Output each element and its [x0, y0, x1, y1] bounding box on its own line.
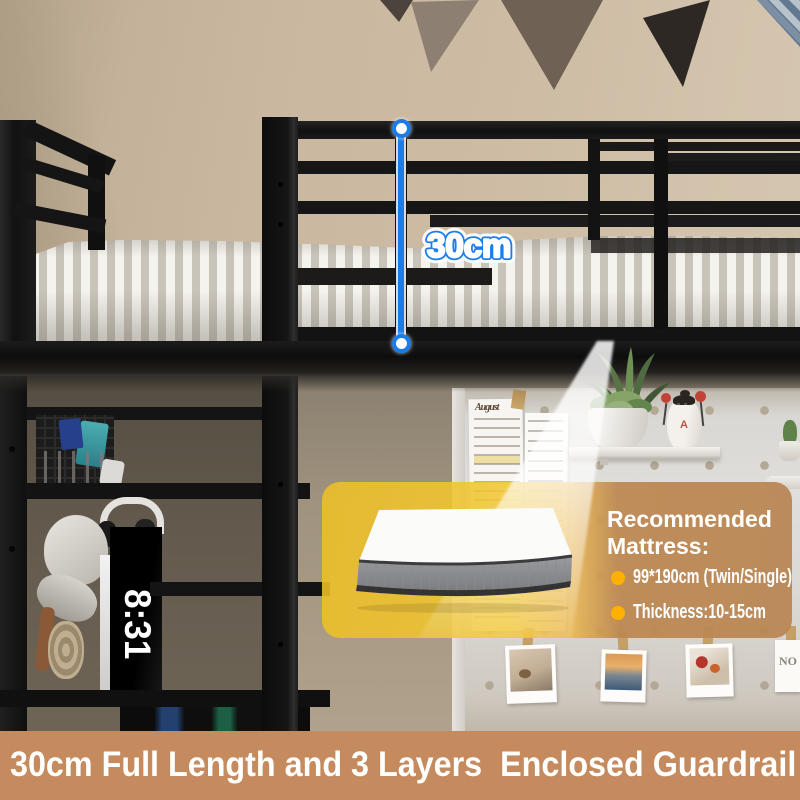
- svg-text:30cm: 30cm: [427, 227, 511, 264]
